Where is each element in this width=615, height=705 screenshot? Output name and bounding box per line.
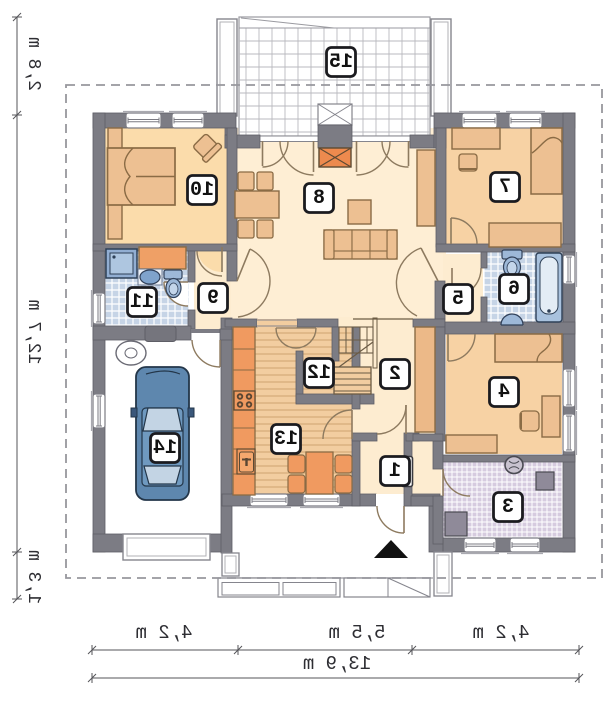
svg-text:1: 1: [389, 460, 401, 483]
svg-text:1,3 m: 1,3 m: [23, 550, 43, 604]
svg-text:13,9 m: 13,9 m: [303, 653, 371, 675]
svg-text:4: 4: [498, 381, 510, 404]
svg-text:3: 3: [502, 496, 514, 519]
svg-text:13: 13: [274, 428, 298, 451]
svg-text:12: 12: [307, 362, 331, 385]
svg-text:4,2 m: 4,2 m: [135, 622, 192, 644]
svg-text:14: 14: [153, 437, 177, 460]
svg-text:2: 2: [389, 363, 401, 386]
svg-text:9: 9: [207, 287, 219, 310]
svg-text:15: 15: [329, 51, 353, 74]
svg-text:12,7 m: 12,7 m: [23, 300, 43, 365]
svg-text:6: 6: [508, 278, 520, 301]
svg-text:5,5 m: 5,5 m: [328, 622, 385, 644]
svg-text:2,8 m: 2,8 m: [23, 37, 43, 91]
svg-text:10: 10: [190, 179, 214, 202]
svg-text:4,2 m: 4,2 m: [472, 622, 529, 644]
svg-text:11: 11: [130, 291, 154, 314]
svg-text:8: 8: [313, 187, 325, 210]
svg-text:7: 7: [499, 176, 511, 199]
svg-text:5: 5: [452, 288, 464, 311]
